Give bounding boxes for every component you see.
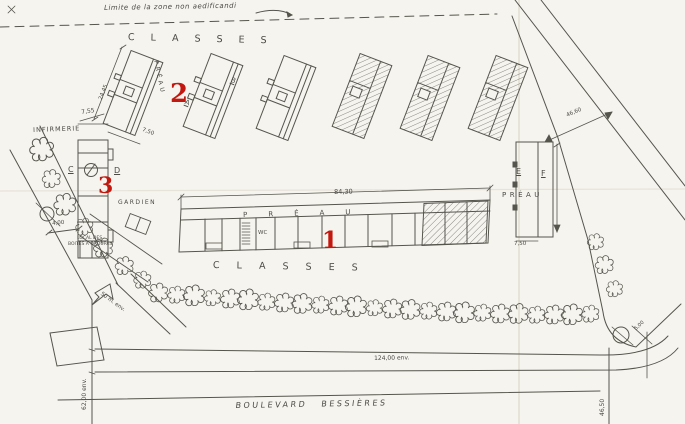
bush-icon (508, 304, 528, 324)
building-f-label: F (541, 170, 546, 178)
red-marker-3[interactable]: 3 (98, 175, 113, 197)
bush-icon (561, 304, 582, 325)
corner-mark (8, 6, 15, 13)
bush-icon (595, 256, 613, 274)
bush-icon (30, 137, 54, 161)
dimension-84-30: 84,30 (334, 189, 353, 196)
dimension-62-00: 62,00 env. (82, 378, 88, 410)
building1-dimension-lines (80, 45, 140, 144)
bush-icon (329, 296, 348, 315)
site-plan-page: Limite de la zone non aedificandi CLASSE… (0, 0, 685, 424)
traffic-island (50, 327, 104, 366)
wc-label: WC (258, 231, 267, 237)
building-c-label: C (68, 166, 74, 174)
dimension-46-50: 46,50 (600, 399, 606, 416)
red-marker-1[interactable]: 1 (322, 229, 338, 252)
hatched-classroom-building (332, 53, 392, 138)
preau-label-ef: PRÉAU (502, 192, 543, 199)
bush-icon (292, 294, 312, 314)
bush-icon (474, 304, 491, 321)
hatched-wing (422, 201, 488, 246)
left-street (10, 126, 186, 334)
building-e-label: E (516, 168, 521, 176)
boundary-dashed-line (0, 6, 497, 27)
bush-icon (453, 302, 474, 323)
bush-icon (54, 193, 76, 215)
bush-icon (258, 293, 275, 310)
bush-icon (420, 302, 437, 319)
local-label-line2: BOITES A ORDURES (68, 243, 113, 248)
bush-icon (42, 170, 60, 188)
bush-icon (221, 289, 240, 308)
dimension-124-00: 124,00 env. (374, 355, 409, 362)
gardien-label: GARDIEN (118, 200, 156, 206)
bush-icon (545, 305, 564, 324)
bush-icon (345, 296, 366, 317)
road-lines (515, 0, 685, 220)
bush-icon (149, 283, 168, 302)
stairs-symbol (242, 223, 250, 244)
bush-icon (491, 304, 510, 323)
bush-icon (383, 299, 402, 318)
bush-icon (183, 285, 204, 306)
building-d-label: D (114, 167, 120, 175)
local-label-line1: LOCAL DES (77, 237, 102, 242)
bush-icon (528, 306, 545, 323)
diagonal-dimension (545, 112, 612, 142)
classroom-building (251, 53, 316, 140)
height-dimension-line (554, 143, 560, 232)
bush-icon (237, 289, 258, 310)
bush-icon (168, 286, 185, 303)
infirmerie-label: INFIRMERIE (33, 125, 80, 133)
bush-icon (366, 300, 382, 316)
bush-icon (437, 302, 456, 321)
bush-icon (400, 300, 420, 320)
bush-icon (606, 281, 622, 297)
hatched-classroom-building (400, 55, 460, 140)
bush-icon (312, 296, 329, 313)
bush-icon (582, 305, 599, 322)
bush-icon (204, 290, 220, 306)
bush-icon (275, 293, 294, 312)
dimension-7-50-ef: 7,50 (514, 242, 526, 248)
